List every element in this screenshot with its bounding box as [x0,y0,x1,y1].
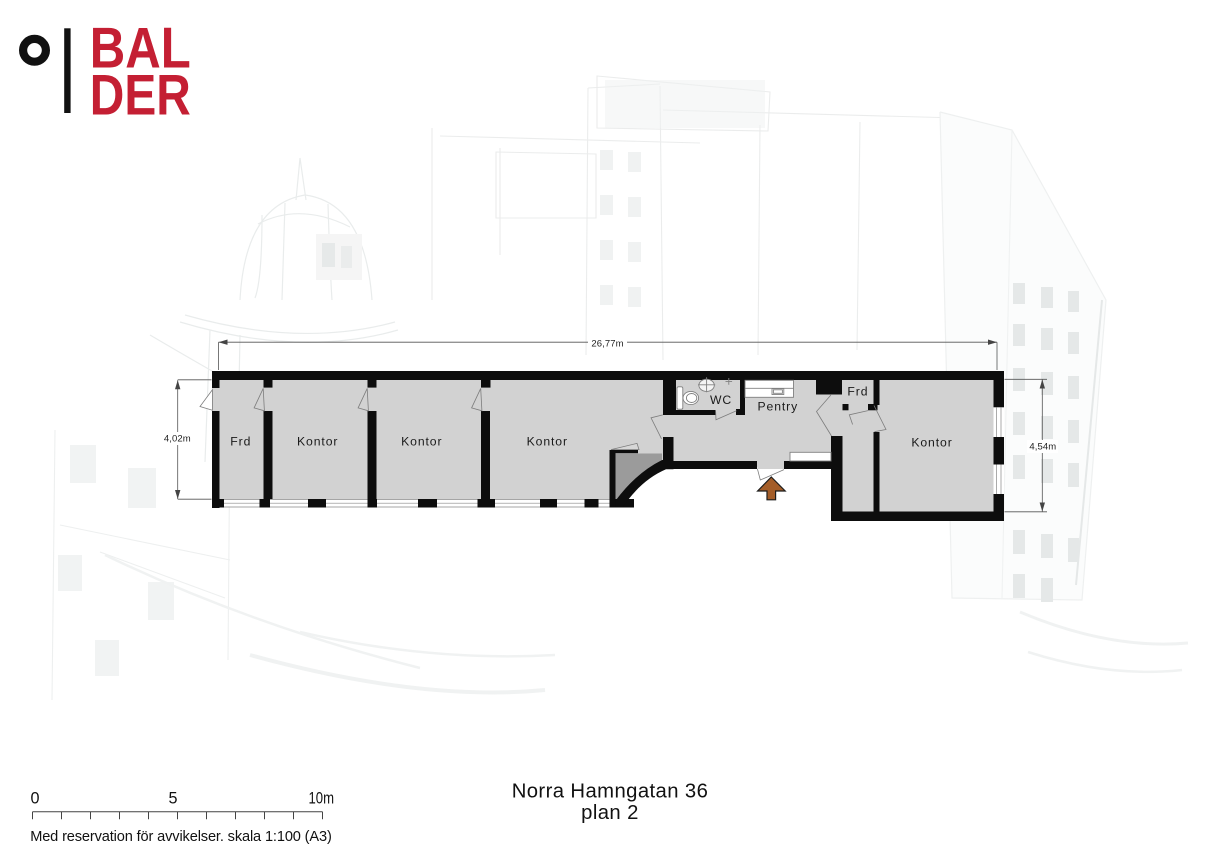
svg-text:26,77m: 26,77m [591,338,623,349]
svg-text:plan 2: plan 2 [581,802,639,824]
svg-text:Kontor: Kontor [401,435,442,449]
svg-text:Kontor: Kontor [297,435,338,449]
svg-text:Med reservation för avvikelser: Med reservation för avvikelser. skala 1:… [30,829,332,845]
svg-text:5: 5 [169,790,178,808]
svg-text:Frd: Frd [847,385,868,399]
svg-text:4,54m: 4,54m [1029,442,1056,453]
svg-text:10m: 10m [309,790,335,808]
svg-text:Kontor: Kontor [527,435,568,449]
svg-text:Norra Hamngatan 36: Norra Hamngatan 36 [512,780,709,802]
svg-text:WC: WC [710,393,732,407]
svg-text:Frd: Frd [230,435,251,449]
svg-text:Pentry: Pentry [757,399,798,413]
svg-text:DER: DER [90,64,191,128]
svg-text:Kontor: Kontor [911,436,952,450]
svg-text:0: 0 [31,790,40,808]
svg-text:4,02m: 4,02m [164,434,191,445]
